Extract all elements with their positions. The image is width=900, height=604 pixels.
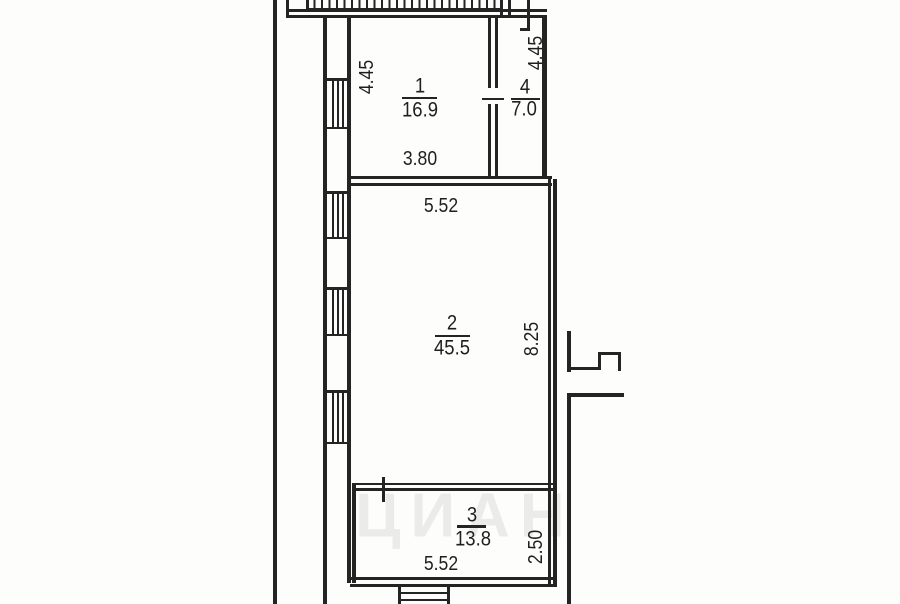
room-3-number: 3 — [467, 505, 477, 526]
wall-room1-room4 — [495, 18, 498, 88]
wall-bottom-outer — [350, 577, 557, 580]
wall-room1-bottom — [350, 183, 552, 186]
window-2 — [337, 191, 339, 239]
wall-left-inner — [347, 16, 351, 583]
page-edge-line — [273, 0, 277, 604]
dim-room-3-bottom: 5.52 — [424, 554, 458, 574]
wall-left-outer — [323, 16, 327, 604]
vent-tick — [520, 28, 530, 31]
window-3 — [342, 287, 344, 336]
dim-room-3-right: 2.50 — [526, 530, 546, 564]
window-3 — [332, 287, 334, 336]
window-2 — [332, 191, 334, 239]
room-4-area: 7.0 — [511, 99, 537, 120]
stair-hatch-left-edge — [306, 0, 309, 8]
window-1 — [337, 78, 339, 129]
balcony-ladder-rung — [398, 592, 450, 595]
wall-room3-left — [352, 483, 356, 583]
wall-bottom-inner — [350, 584, 557, 587]
wall-room1-room4 — [488, 18, 491, 88]
window-4 — [337, 390, 339, 444]
window-4 — [342, 390, 344, 444]
adjacent-wall — [567, 367, 601, 370]
adjacent-wall-lower — [567, 393, 624, 397]
adjacent-wall — [567, 331, 571, 372]
wall-right-outer — [553, 179, 557, 586]
wall-room1-room4 — [495, 104, 498, 178]
window-1 — [332, 78, 334, 129]
doorway-mark-room2-room3 — [382, 477, 385, 502]
room-4-number: 4 — [520, 77, 530, 98]
wall-top-outer — [286, 9, 547, 12]
balcony-ladder — [398, 586, 401, 604]
adjacent-wall-notch — [618, 352, 621, 371]
wall-room1-bottom — [350, 176, 552, 179]
room-2-number: 2 — [447, 313, 457, 334]
wall-room1-room4 — [488, 104, 491, 178]
adjacent-wall-lower — [567, 393, 571, 604]
floor-plan: ЦИАН — [0, 0, 900, 604]
dim-room-2-top: 5.52 — [424, 196, 458, 216]
dim-room-4-right: 4.45 — [526, 36, 546, 70]
balcony-ladder-rung — [398, 599, 450, 602]
dim-room-1-bottom: 3.80 — [403, 149, 437, 169]
balcony-ladder — [447, 586, 450, 604]
window-3 — [337, 287, 339, 336]
dim-room-2-right: 8.25 — [522, 322, 542, 356]
room-1-area: 16.9 — [402, 100, 438, 121]
room-3-area: 13.8 — [455, 529, 491, 550]
wall-right-inner — [548, 179, 551, 586]
room-1-number: 1 — [415, 76, 425, 97]
room-2-area: 45.5 — [434, 338, 470, 359]
window-2 — [342, 191, 344, 239]
doorway-mark-room1-room4 — [482, 98, 504, 101]
window-1 — [342, 78, 344, 129]
window-4 — [332, 390, 334, 444]
dim-room-1-left: 4.45 — [357, 60, 377, 94]
vent-line — [527, 0, 530, 31]
